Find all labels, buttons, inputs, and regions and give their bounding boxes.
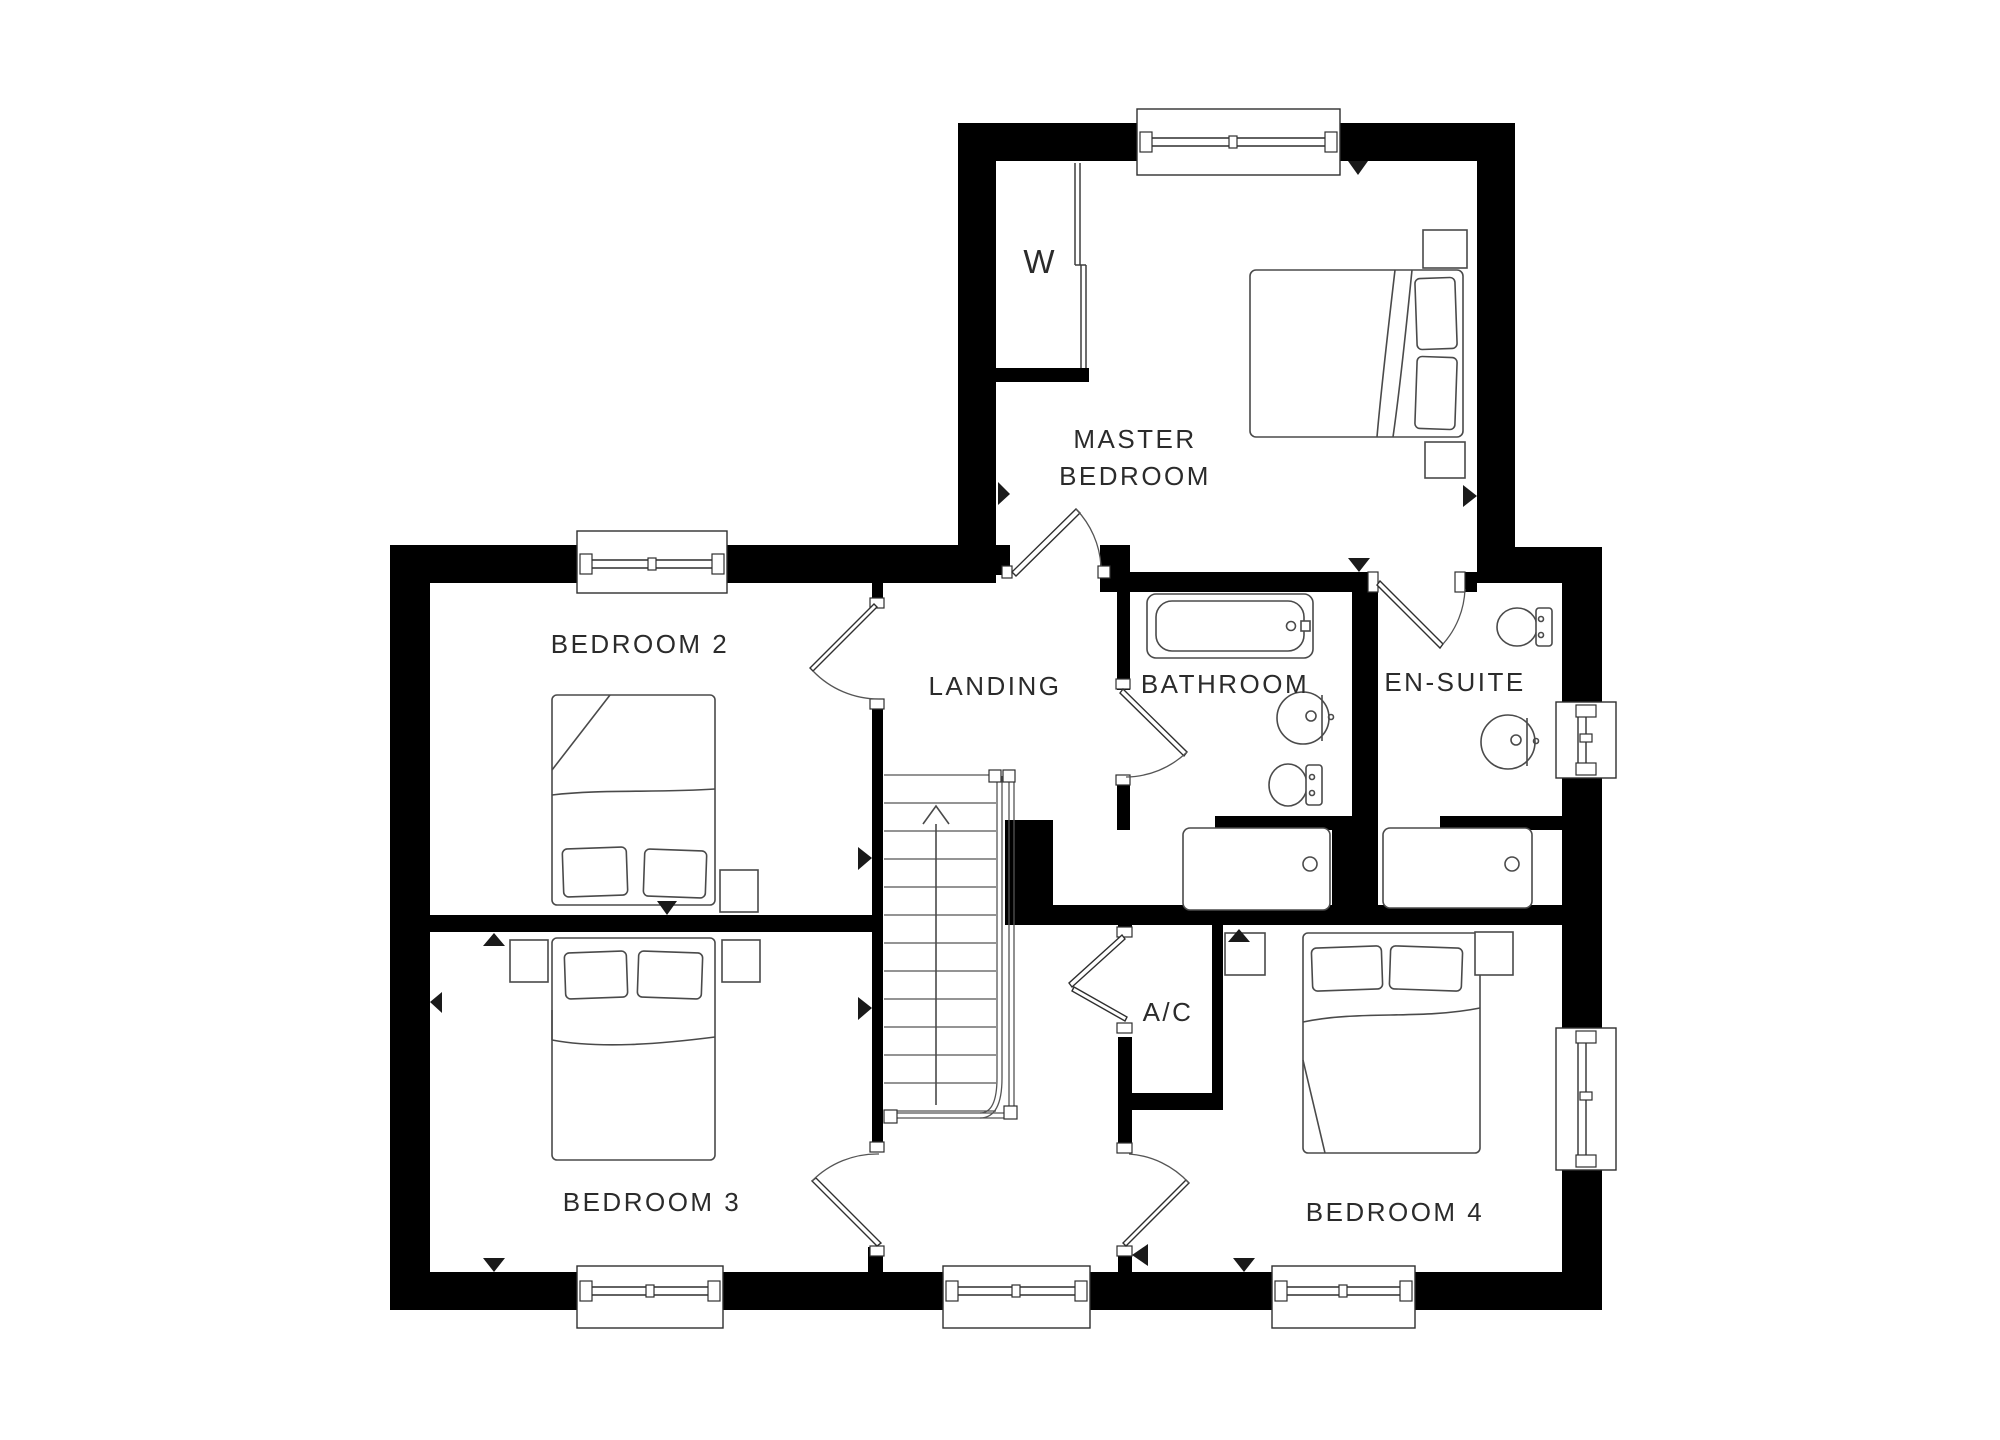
pillow [562, 847, 628, 897]
wall-bathroom-top [1130, 572, 1378, 592]
label-ac: A/C [1143, 997, 1194, 1027]
floor-plan: W MASTER BEDROOM BEDROOM 2 LANDING BATHR… [0, 0, 2000, 1440]
label-bedroom3: BEDROOM 3 [563, 1187, 742, 1217]
marker-triangle [1233, 1258, 1255, 1272]
wall-bottom-2 [723, 1272, 943, 1310]
wall-right-upper [1562, 583, 1602, 702]
bed-bedroom4 [1303, 933, 1480, 1153]
wall-bath-ensuite-divider [1352, 592, 1378, 816]
door-master-bedroom [1002, 509, 1110, 578]
marker-triangle [657, 901, 677, 915]
pillow [564, 951, 628, 999]
window-bedroom3 [577, 1266, 723, 1328]
window-bedroom2 [577, 531, 727, 593]
stair-treads [884, 775, 996, 1111]
ensuite-shower [1383, 828, 1532, 908]
wall-bedroom2-top-right [727, 545, 996, 583]
marker-triangle [858, 997, 872, 1020]
bedside-table [1423, 230, 1467, 268]
marker-triangle [1132, 1244, 1148, 1266]
staircase [884, 770, 1017, 1123]
pillow [1415, 356, 1457, 429]
window-landing [943, 1266, 1090, 1328]
bed-bedroom3 [552, 938, 715, 1160]
label-bathroom: BATHROOM [1141, 669, 1309, 699]
window-bedroom4-south [1272, 1266, 1415, 1328]
bedside-table [510, 940, 548, 982]
marker-triangle [1348, 558, 1370, 572]
wall-wardrobe-bottom [996, 368, 1089, 382]
window-master [1137, 109, 1340, 175]
wall-bottom-4 [1415, 1272, 1602, 1310]
marker-triangle [483, 1258, 505, 1272]
bedside-table [1425, 442, 1465, 478]
wall-landing-bedroom4 [1118, 1037, 1132, 1153]
wall-right-mid [1562, 778, 1602, 1028]
marker-triangle [483, 933, 505, 946]
pillow [1389, 946, 1462, 991]
bathtub [1147, 594, 1313, 658]
stair-banister [884, 770, 1017, 1123]
door-ac-bifold [1069, 927, 1132, 1033]
door-ensuite [1368, 572, 1465, 648]
wall-bedroom2-top-left [390, 545, 577, 583]
wall-master-left [958, 123, 996, 580]
wall-bottom-3 [1090, 1272, 1272, 1310]
label-bedroom4: BEDROOM 4 [1306, 1197, 1485, 1227]
newel-post [1003, 770, 1015, 782]
pillow [1311, 946, 1382, 991]
newel-post [989, 770, 1001, 782]
ensuite-sink [1481, 715, 1539, 769]
label-bedroom2: BEDROOM 2 [551, 629, 730, 659]
door-bedroom4 [1117, 1143, 1189, 1256]
newel-post [884, 1110, 897, 1123]
pillow [637, 951, 703, 999]
bathroom-sink [1277, 692, 1334, 744]
window-bedroom4-east [1556, 1028, 1616, 1170]
pillow [1415, 277, 1457, 349]
wall-ensuite-top [1477, 547, 1602, 583]
label-wardrobe: W [1023, 243, 1056, 280]
wall-bottom-1 [390, 1272, 577, 1310]
bedside-table [1475, 932, 1513, 975]
marker-triangle [430, 992, 442, 1013]
wall-ac-bottom [1118, 1093, 1223, 1110]
ensuite-toilet [1497, 608, 1552, 646]
marker-triangle [998, 482, 1010, 505]
bathroom-shower [1183, 828, 1330, 910]
label-ensuite: EN-SUITE [1384, 667, 1525, 697]
label-master-line1: MASTER [1073, 424, 1196, 454]
window-ensuite [1556, 702, 1616, 778]
newel-post [1004, 1106, 1017, 1119]
bed-master [1250, 270, 1463, 437]
bedside-table [722, 940, 760, 982]
wall-bedroom2-3-divider [430, 915, 883, 932]
wall-bathroom-left-upper [1117, 592, 1130, 690]
pillow [643, 849, 707, 898]
wall-ac-right [1212, 925, 1223, 1110]
wall-master-right [1477, 123, 1515, 547]
bed-bedroom2 [552, 695, 715, 905]
door-wardrobe-sliding [1075, 163, 1086, 368]
marker-triangle [858, 847, 872, 870]
wall-left [390, 545, 430, 1310]
stair-direction-arrow [923, 806, 949, 1105]
marker-triangle [1348, 161, 1368, 175]
door-bedroom3 [812, 1142, 884, 1256]
bathroom-toilet [1269, 764, 1322, 806]
door-bedroom2 [810, 598, 884, 709]
label-landing: LANDING [928, 671, 1061, 701]
marker-triangle [1463, 485, 1477, 507]
bedside-table [720, 870, 758, 912]
label-master-line2: BEDROOM [1059, 461, 1211, 491]
